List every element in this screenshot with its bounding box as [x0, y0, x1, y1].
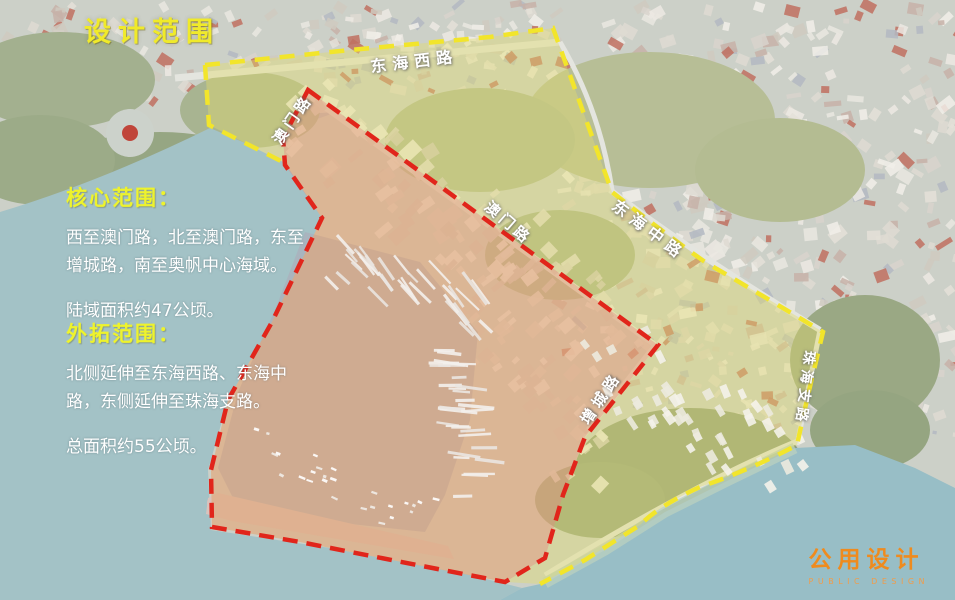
- logo-cn: 公用设计: [809, 540, 929, 574]
- core-scope-body: 西至澳门路，北至澳门路，东至增城路，南至奥帆中心海域。: [66, 225, 308, 280]
- outer-scope-body: 北侧延伸至东海西路、东海中路，东侧延伸至珠海支路。: [66, 361, 308, 416]
- design-scope-map-slide: 设计范围 核心范围： 西至澳门路，北至澳门路，东至增城路，南至奥帆中心海域。 陆…: [0, 0, 955, 600]
- legend-core-scope: 核心范围： 西至澳门路，北至澳门路，东至增城路，南至奥帆中心海域。 陆域面积约4…: [66, 182, 308, 321]
- core-scope-heading: 核心范围：: [66, 182, 308, 212]
- red-sculpture: [122, 125, 138, 141]
- page-title: 设计范围: [84, 10, 220, 49]
- outer-scope-area: 总面积约55公顷。: [66, 432, 308, 457]
- legend-outer-scope: 外拓范围： 北侧延伸至东海西路、东海中路，东侧延伸至珠海支路。 总面积约55公顷…: [66, 318, 308, 457]
- logo-en: PUBLIC DESIGN: [809, 577, 929, 586]
- publisher-logo: 公用设计 PUBLIC DESIGN: [809, 540, 929, 586]
- outer-scope-heading: 外拓范围：: [66, 318, 308, 348]
